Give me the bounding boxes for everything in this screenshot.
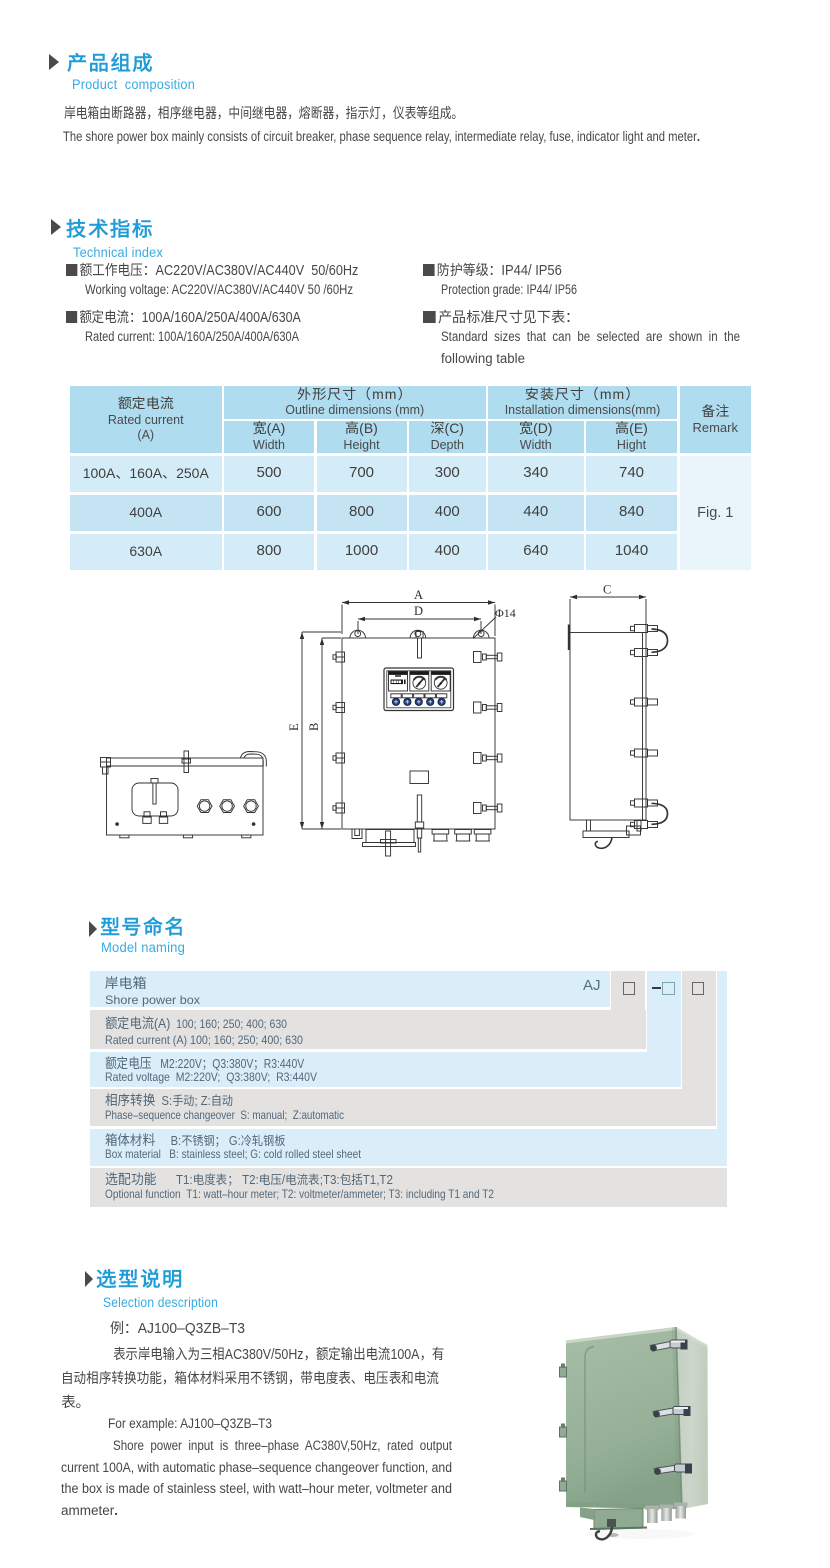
svg-text:B: B: [307, 723, 321, 731]
svg-text:Φ14: Φ14: [495, 606, 516, 620]
svg-text:C: C: [603, 585, 611, 597]
svg-text:D: D: [414, 604, 423, 618]
svg-text:A: A: [414, 588, 423, 602]
svg-text:E: E: [287, 723, 301, 731]
